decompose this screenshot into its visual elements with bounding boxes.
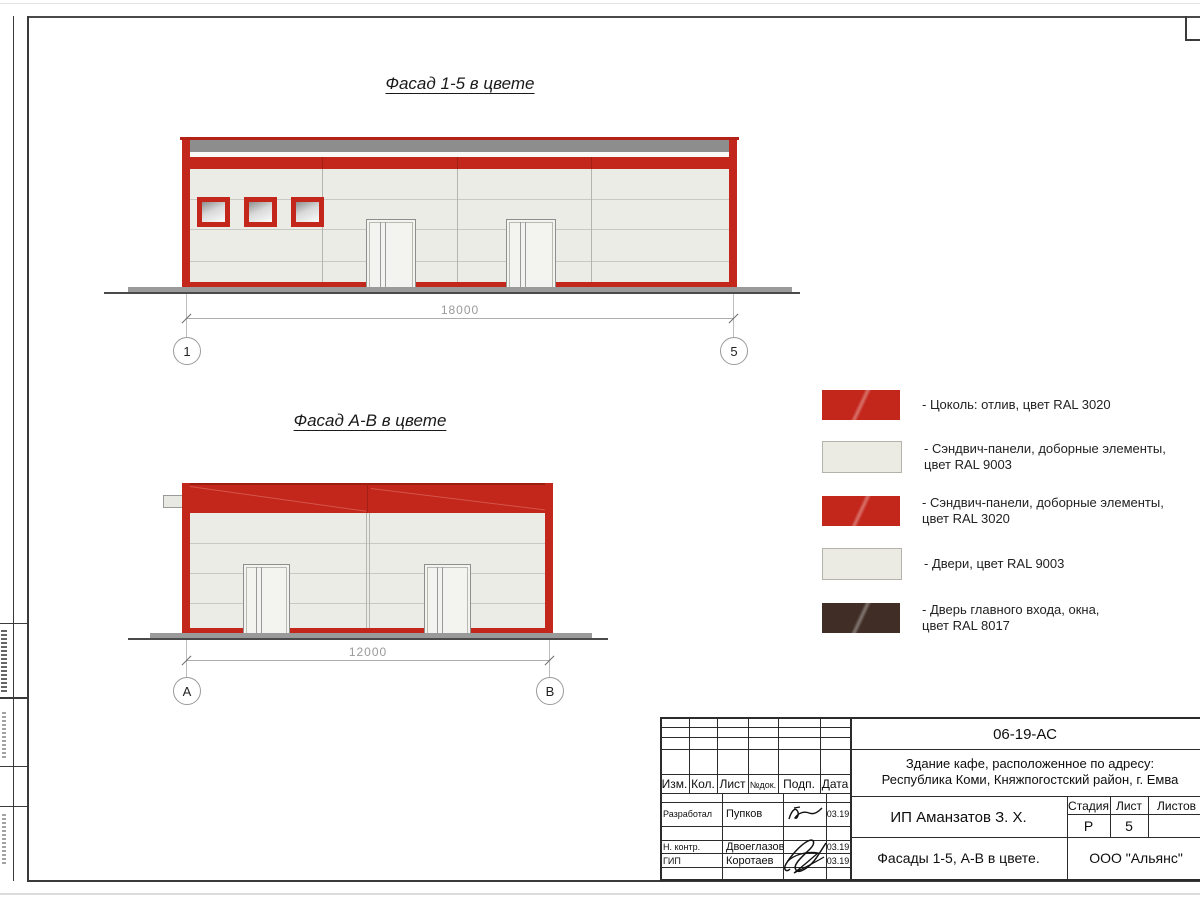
swatch-scratch: [822, 496, 900, 526]
door: [424, 564, 471, 635]
signature-developed: [786, 803, 824, 825]
band-joint: [322, 157, 323, 169]
left-stamp-divider-1: [0, 623, 27, 624]
tb-col-stadia: Стадия: [1067, 799, 1110, 813]
dimension-value: 18000: [410, 303, 510, 317]
left-stamp-text-illegible-3: [2, 814, 6, 866]
door-leaf-divider: [380, 222, 386, 288]
dimension-line: [186, 318, 734, 319]
tb-line: [660, 737, 850, 738]
panel-joint: [190, 543, 545, 544]
tb-name-ncontr: Двоеглазов: [726, 841, 782, 853]
legend-label: - Сэндвич-панели, доборные элементы,цвет…: [924, 441, 1166, 473]
tb-col-sheet: Лист: [1110, 799, 1148, 813]
tb-col-kol: Кол.: [689, 777, 717, 791]
tb-name-developed: Пупков: [726, 808, 782, 820]
tb-doc-number: 06-19-АС: [850, 726, 1200, 743]
door-leaf-divider: [256, 567, 262, 634]
legend-item: - Сэндвич-панели, доборные элементы,цвет…: [822, 495, 1164, 527]
axis-label: В: [546, 684, 555, 699]
panel-joint: [190, 261, 729, 262]
tb-company: ООО "Альянс": [1067, 850, 1200, 866]
legend-label: - Двери, цвет RAL 9003: [924, 556, 1064, 572]
left-stamp-divider-3: [0, 766, 27, 767]
tb-stage-value: Р: [1067, 818, 1110, 834]
left-stamp-divider-2: [0, 697, 27, 699]
tb-role-gip: ГИП: [663, 856, 722, 866]
left-stamp-text-illegible-2: [2, 712, 6, 760]
legend-swatch-ral3020: [822, 496, 900, 526]
door: [243, 564, 290, 635]
tb-date-developed: 03.19: [826, 809, 850, 819]
scan-edge-bottom: [0, 893, 1200, 895]
tb-object-line2: Республика Коми, Княжпогостский район, г…: [865, 772, 1195, 787]
drawing-sheet: Фасад 1-5 в цвете: [0, 0, 1200, 900]
legend-label: - Цоколь: отлив, цвет RAL 3020: [922, 397, 1111, 413]
frame-left-border: [27, 16, 29, 882]
axis-bubble-5: 5: [720, 337, 748, 365]
tb-border: [660, 717, 662, 881]
axis-bubble-a: А: [173, 677, 201, 705]
tb-col-podp: Подп.: [778, 777, 820, 791]
legend-item: - Сэндвич-панели, доборные элементы,цвет…: [822, 441, 1166, 473]
tb-client: ИП Аманзатов З. Х.: [850, 809, 1067, 826]
tb-role-ncontr: Н. контр.: [663, 842, 722, 852]
left-stamp-text-illegible-1: [1, 630, 7, 692]
band-joint: [367, 483, 368, 513]
axis-label: 5: [730, 344, 737, 359]
signature-gip: [780, 835, 832, 877]
tb-sheet-number: 5: [1110, 818, 1148, 834]
right-pilaster: [545, 483, 553, 633]
tb-object-line1: Здание кафе, расположенное по адресу:: [865, 756, 1195, 771]
legend-item: - Двери, цвет RAL 9003: [822, 548, 1064, 580]
window: [197, 197, 230, 227]
door-frame: [509, 222, 553, 288]
tb-col-sheets: Листов: [1148, 799, 1200, 813]
axis-bubble-1: 1: [173, 337, 201, 365]
panel-joint: [457, 169, 458, 287]
panel-joint: [369, 513, 370, 633]
door-frame: [427, 567, 468, 634]
tb-line: [660, 774, 850, 775]
left-stamp-inner-line: [13, 16, 14, 881]
axis-label: А: [183, 684, 192, 699]
facade-1-5-title: Фасад 1-5 в цвете: [365, 74, 555, 94]
axis-bubble-b: В: [536, 677, 564, 705]
wall-panels: [190, 169, 729, 287]
title-block: Изм. Кол. Лист №док. Подп. Дата Разработ…: [660, 717, 1200, 881]
panel-joint: [591, 169, 592, 287]
legend-label: - Сэндвич-панели, доборные элементы,цвет…: [922, 495, 1164, 527]
legend-item: - Цоколь: отлив, цвет RAL 3020: [822, 389, 1111, 421]
door: [366, 219, 416, 289]
ground-line: [128, 638, 608, 640]
window: [291, 197, 324, 227]
tb-border: [660, 879, 1200, 881]
tb-border: [660, 717, 1200, 719]
tb-line: [660, 749, 1200, 750]
legend-item: - Дверь главного входа, окна,цвет RAL 80…: [822, 602, 1099, 634]
door-frame: [246, 567, 287, 634]
frame-top-border: [27, 16, 1200, 18]
frame-corner-notch-h: [1185, 39, 1200, 41]
top-red-band: [182, 157, 737, 169]
tb-col-ndok: №док.: [748, 780, 778, 790]
ground-line: [104, 292, 800, 294]
window: [244, 197, 277, 227]
axis-label: 1: [183, 344, 190, 359]
tb-name-gip: Коротаев: [726, 855, 782, 867]
tb-role-developed: Разработал: [663, 809, 722, 819]
door-frame: [369, 222, 413, 288]
tb-col-data: Дата: [820, 777, 850, 791]
tb-line: [660, 826, 850, 827]
tb-line: [660, 793, 850, 794]
tb-line: [660, 727, 850, 728]
dimension-value: 12000: [318, 645, 418, 659]
legend-swatch-ral3020: [822, 390, 900, 420]
swatch-scratch: [822, 390, 900, 420]
door-leaf-divider: [437, 567, 443, 634]
tb-col-list: Лист: [717, 777, 748, 791]
left-stamp-divider-4: [0, 806, 27, 807]
left-pilaster: [182, 483, 190, 633]
tb-line: [850, 837, 1200, 838]
door: [506, 219, 556, 289]
swatch-scratch: [822, 603, 900, 633]
right-pilaster: [729, 140, 737, 287]
scan-edge-top: [0, 3, 1200, 4]
tb-col-izm: Изм.: [660, 777, 689, 791]
panel-joint: [366, 513, 367, 633]
parapet-gray-band: [183, 140, 736, 152]
left-pilaster: [182, 140, 190, 287]
band-joint: [591, 157, 592, 169]
facade-a-b-title: Фасад А-В в цвете: [275, 411, 465, 431]
legend-swatch-ral9003: [822, 441, 902, 473]
legend-swatch-ral9003-doors: [822, 548, 902, 580]
legend-swatch-ral8017: [822, 603, 900, 633]
frame-corner-notch-v: [1185, 16, 1187, 41]
tb-sheet-name: Фасады 1-5, А-В в цвете.: [850, 850, 1067, 866]
door-leaf-divider: [520, 222, 526, 288]
tb-line: [1067, 814, 1200, 815]
band-joint: [457, 157, 458, 169]
dimension-line: [186, 660, 550, 661]
panel-joint: [322, 169, 323, 287]
legend-label: - Дверь главного входа, окна,цвет RAL 80…: [922, 602, 1099, 634]
panel-joint: [190, 229, 729, 230]
